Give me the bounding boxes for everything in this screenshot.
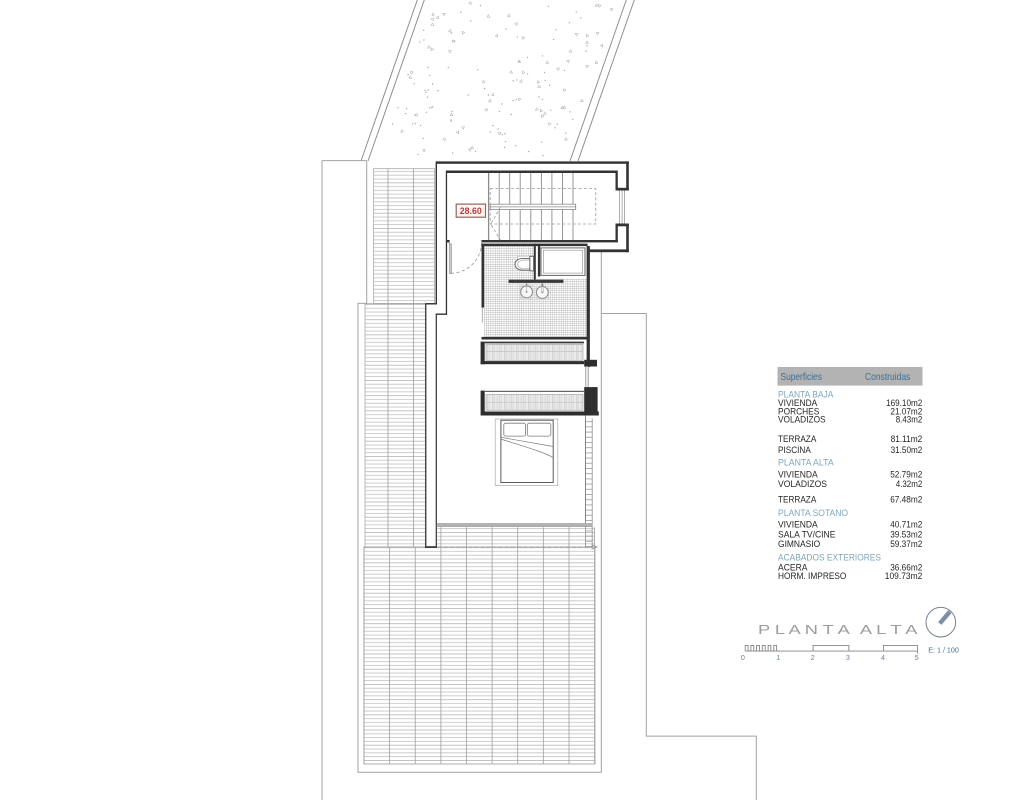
svg-text:3: 3: [846, 653, 850, 662]
svg-text:GIMNASIO: GIMNASIO: [778, 539, 820, 550]
svg-text:59.37m2: 59.37m2: [890, 539, 922, 550]
svg-text:Construidas: Construidas: [865, 372, 910, 383]
svg-text:28.60: 28.60: [460, 206, 482, 216]
svg-text:5: 5: [915, 653, 919, 662]
svg-text:HORM. IMPRESO: HORM. IMPRESO: [778, 571, 846, 582]
svg-text:8.43m2: 8.43m2: [896, 414, 923, 425]
svg-text:0: 0: [741, 653, 745, 662]
svg-text:67.48m2: 67.48m2: [890, 494, 922, 505]
svg-text:4.32m2: 4.32m2: [896, 479, 923, 490]
svg-text:VOLADIZOS: VOLADIZOS: [778, 479, 827, 490]
svg-text:1: 1: [776, 653, 780, 662]
svg-text:Superficies: Superficies: [781, 372, 822, 383]
svg-text:PLANTA SOTANO: PLANTA SOTANO: [778, 508, 848, 519]
svg-text:TERRAZA: TERRAZA: [778, 434, 817, 445]
svg-text:P L A N T A A L T A: P L A N T A A L T A: [758, 622, 918, 637]
svg-text:31.50m2: 31.50m2: [891, 445, 923, 456]
svg-text:TERRAZA: TERRAZA: [778, 494, 817, 505]
svg-text:E: 1 / 100: E: 1 / 100: [928, 645, 959, 654]
svg-text:PLANTA ALTA: PLANTA ALTA: [778, 458, 834, 469]
svg-text:PISCINA: PISCINA: [778, 445, 811, 456]
svg-text:81.11m2: 81.11m2: [891, 434, 923, 445]
svg-text:VOLADIZOS: VOLADIZOS: [778, 414, 826, 425]
svg-text:109.73m2: 109.73m2: [885, 571, 923, 582]
svg-text:2: 2: [811, 653, 815, 662]
svg-text:4: 4: [881, 653, 885, 662]
